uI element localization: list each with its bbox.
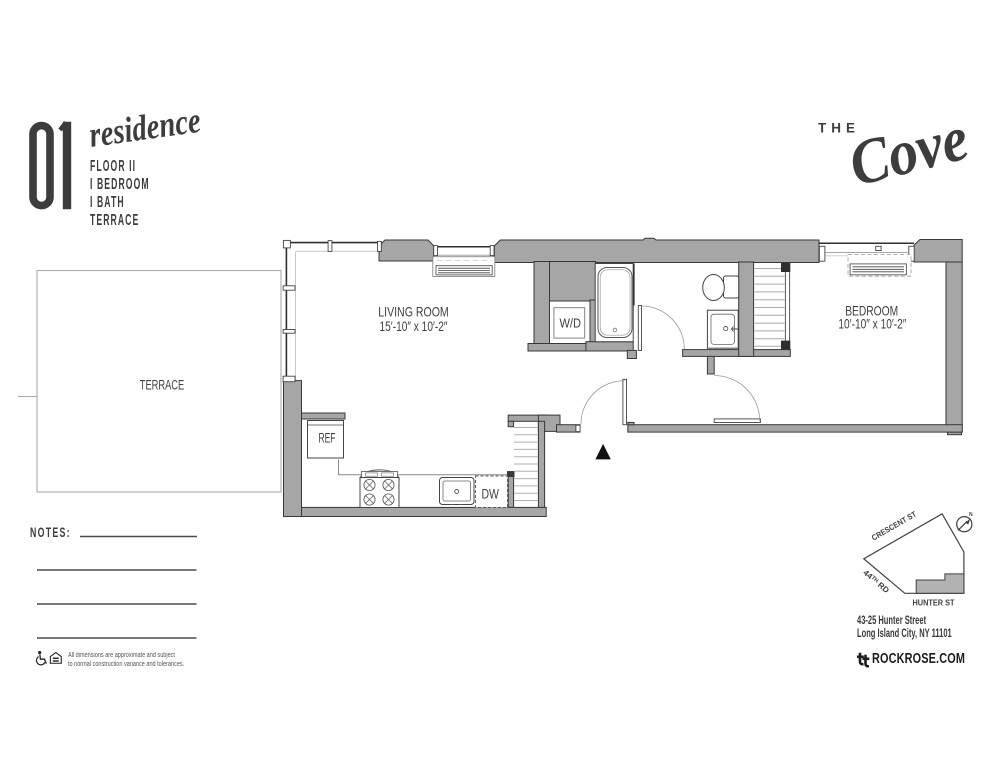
svg-text:N: N: [969, 512, 973, 518]
svg-text:TERRACE: TERRACE: [140, 378, 185, 393]
svg-text:HUNTER ST: HUNTER ST: [913, 599, 955, 608]
svg-text:W/D: W/D: [559, 316, 581, 331]
svg-text:15′-10″ x 10′-2″: 15′-10″ x 10′-2″: [380, 318, 448, 334]
svg-text:10′-10″ x 10′-2″: 10′-10″ x 10′-2″: [838, 316, 906, 332]
svg-text:44ᵀᴴ RD: 44ᵀᴴ RD: [861, 568, 891, 595]
svg-text:residence: residence: [87, 100, 203, 155]
svg-text:CRESCENT ST: CRESCENT ST: [870, 510, 918, 543]
svg-text:REF: REF: [319, 430, 336, 445]
svg-text:Cove: Cove: [842, 102, 975, 200]
svg-text:DW: DW: [481, 487, 499, 502]
